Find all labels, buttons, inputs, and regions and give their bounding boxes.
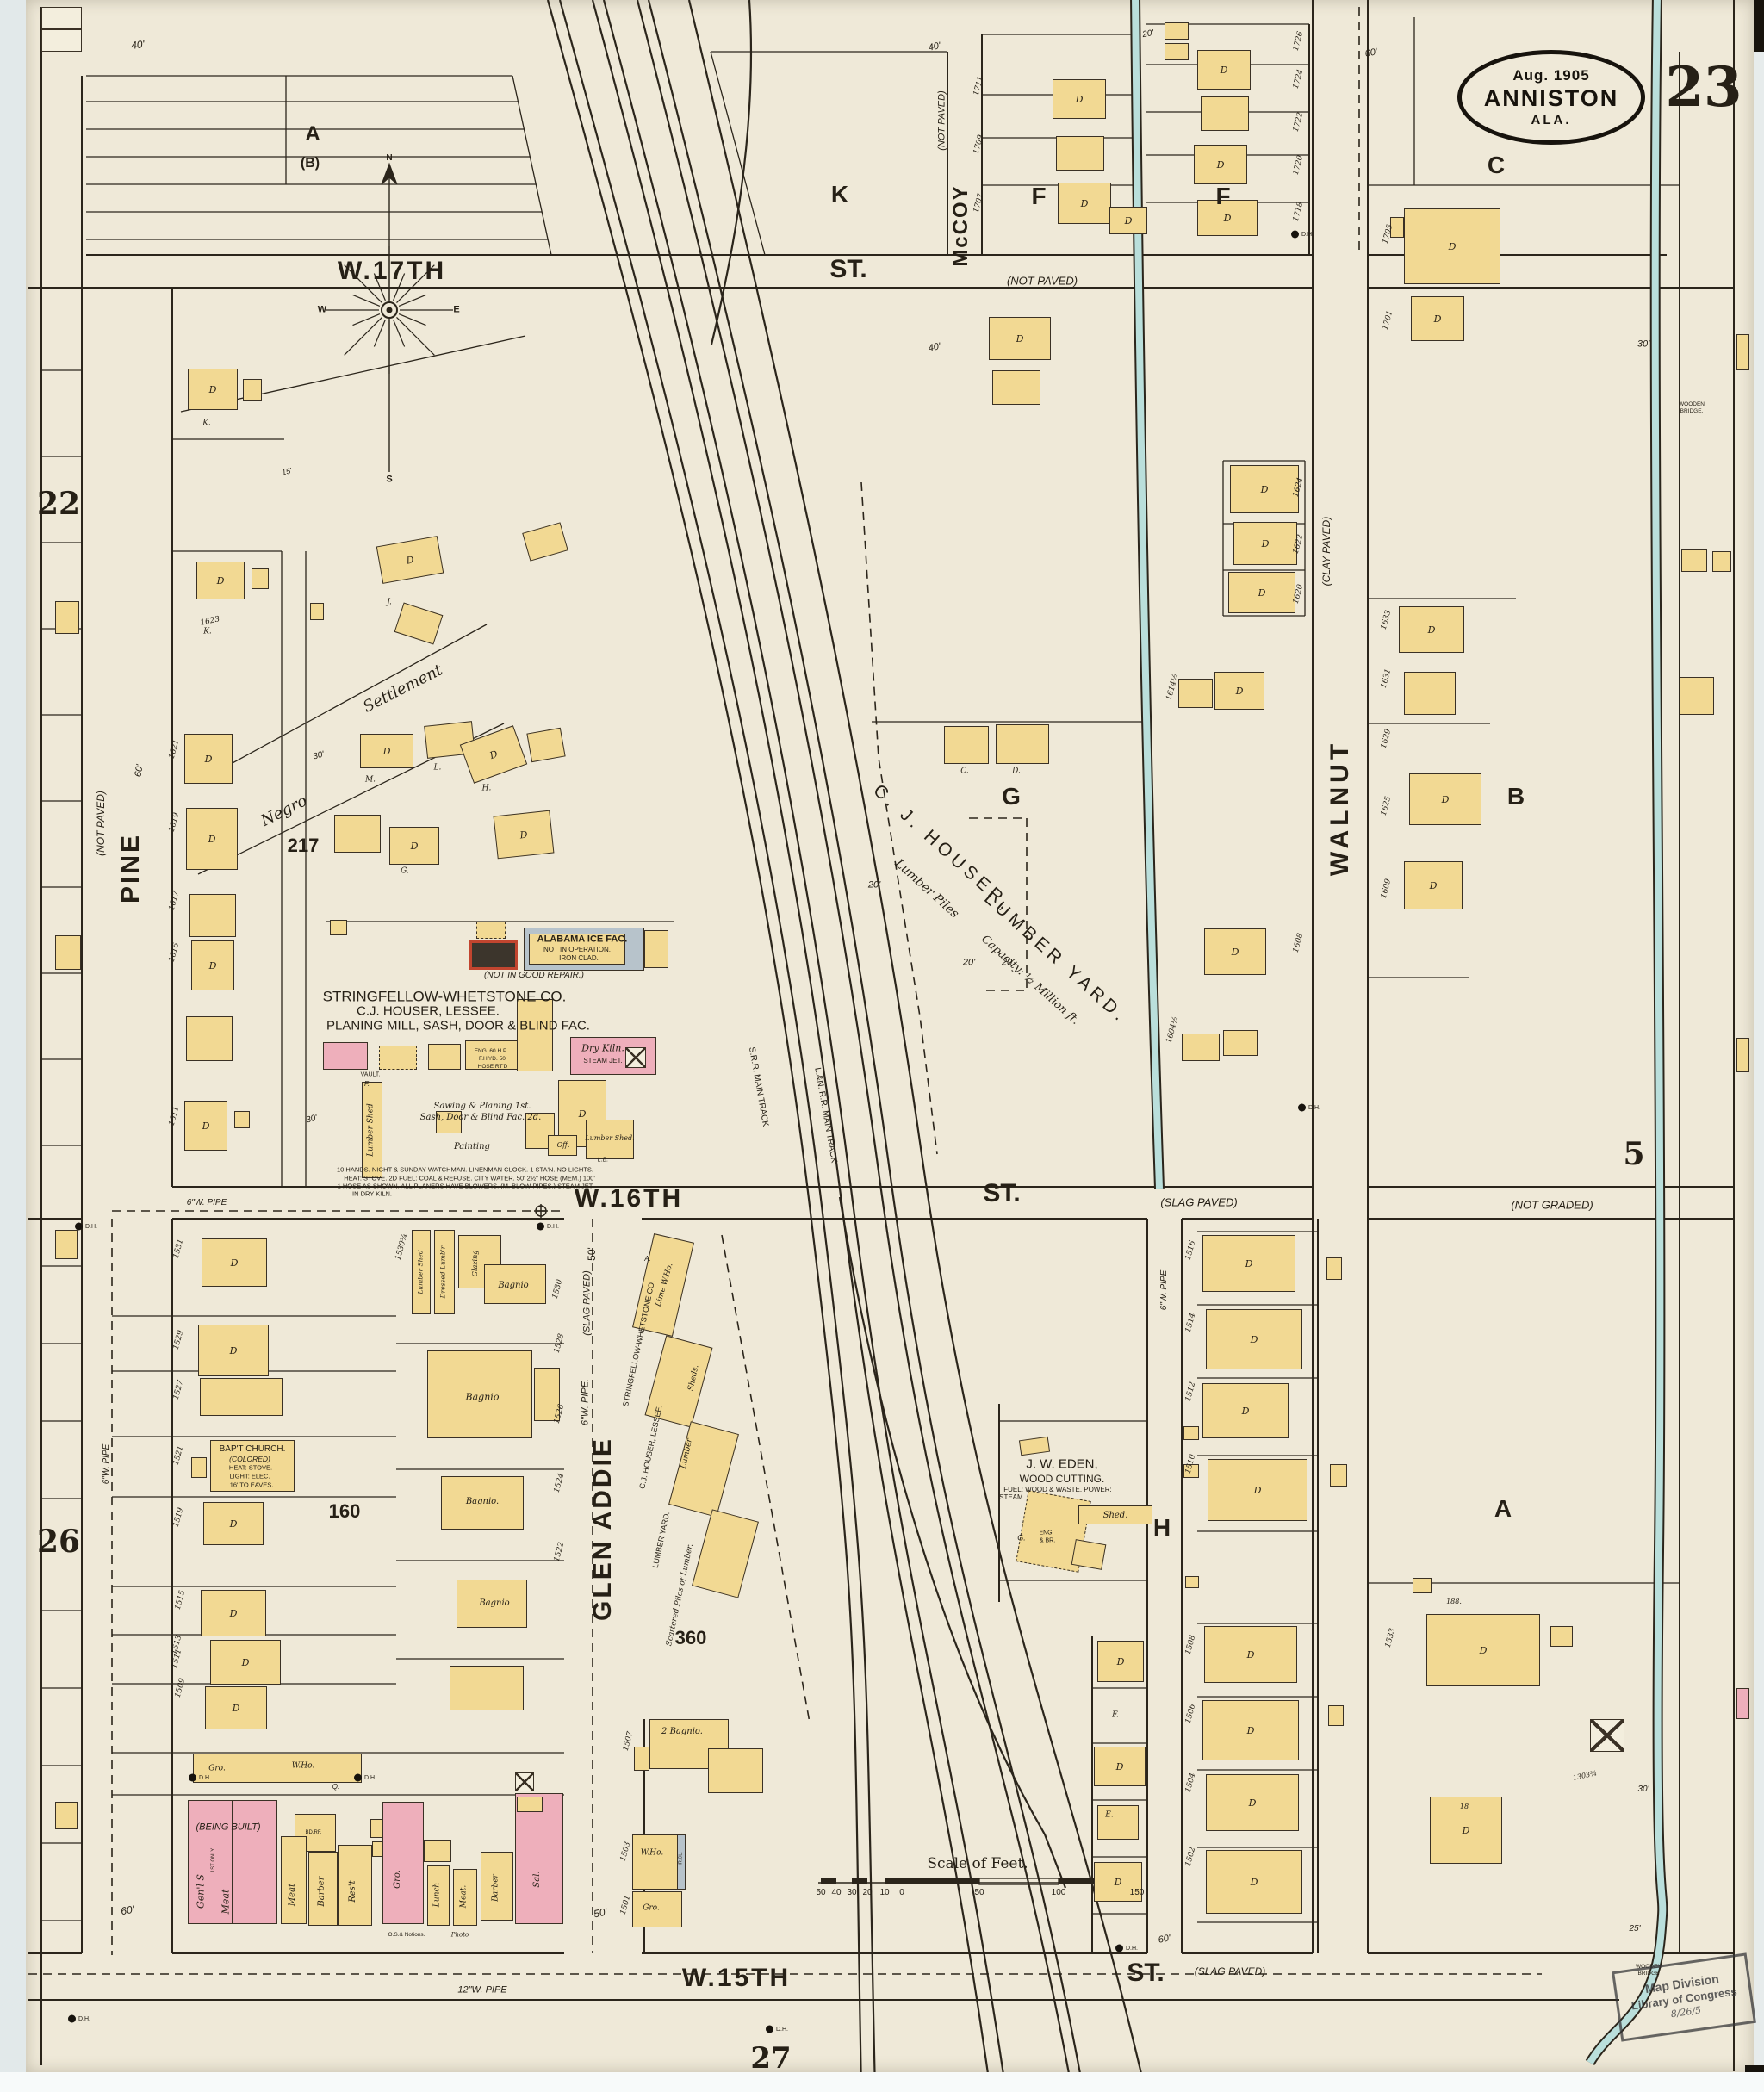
map-label: W.Ho. <box>641 1850 664 1858</box>
alabama-ice-factory: ALABAMA ICE FAC. <box>537 935 628 945</box>
building <box>1736 1688 1749 1719</box>
building: D <box>1053 79 1106 119</box>
map-label: (COLORED) <box>229 1456 270 1463</box>
building: D <box>1233 522 1297 565</box>
map-label: 50' <box>587 1247 597 1261</box>
map-label: C.J. HOUSER, LESSEE. <box>357 1005 500 1018</box>
map-label: 6"W. PIPE <box>187 1199 227 1207</box>
hydrant-dot-icon <box>1115 1945 1123 1952</box>
double-hydrant-marker: D.H. <box>68 2015 90 2023</box>
building: D <box>1058 183 1111 224</box>
double-hydrant-marker: D.H. <box>189 1774 211 1782</box>
map-label: HEAT: STOVE. <box>229 1464 272 1471</box>
block-f-west: F <box>1031 184 1046 208</box>
building: D <box>360 734 413 768</box>
map-label: PLANING MILL, SASH, DOOR & BLIND FAC. <box>326 1020 590 1033</box>
map-label: A. <box>644 1256 651 1263</box>
compass-letter: E <box>453 306 459 315</box>
map-label: Res't <box>349 1880 357 1902</box>
map-label: 30' <box>1637 1785 1649 1794</box>
building <box>1178 679 1213 708</box>
building: D <box>1404 208 1500 284</box>
building: D <box>1411 296 1464 341</box>
building: D <box>188 369 238 410</box>
building <box>55 935 81 970</box>
adjacent-sheet-5: 5 <box>1623 1139 1644 1170</box>
building: D <box>389 827 439 865</box>
map-label: STEAM. <box>999 1494 1025 1501</box>
scale-tick: 20 <box>862 1889 872 1897</box>
hydrant-dot-icon <box>189 1774 196 1782</box>
adjacent-sheet-26: 26 <box>37 1526 80 1557</box>
building: D <box>198 1325 269 1376</box>
map-label: ST. <box>983 1181 1020 1207</box>
map-label: LIGHT: ELEC. <box>229 1473 270 1480</box>
map-label: (NOT GRADED) <box>1511 1200 1593 1211</box>
scale-title: Scale of Feet. <box>927 1855 1028 1872</box>
building: D <box>202 1238 267 1287</box>
map-label: VAULT. <box>361 1072 381 1078</box>
compass-letter: W <box>318 306 326 315</box>
street-w-17th: W.17TH <box>338 258 446 284</box>
building: D <box>1426 1614 1540 1686</box>
block-b: B <box>1507 785 1525 809</box>
map-label: 16' TO EAVES. <box>230 1481 274 1488</box>
street-w-17th-st: ST. <box>829 257 866 282</box>
double-hydrant-marker: D.H. <box>1115 1945 1138 1952</box>
map-label: Off. <box>557 1142 570 1149</box>
double-hydrant-marker: D.H. <box>75 1223 97 1231</box>
building <box>424 1840 451 1862</box>
building <box>992 370 1040 405</box>
building <box>310 603 324 620</box>
building <box>55 601 79 634</box>
street-w-15th: W.15TH <box>682 1965 791 1991</box>
building: D <box>1208 1459 1307 1521</box>
block-a: A <box>305 124 320 145</box>
building <box>330 920 347 935</box>
map-label: 25' <box>1629 1925 1640 1934</box>
double-hydrant-marker: D.H. <box>354 1774 376 1782</box>
hydrant-dot-icon <box>1291 231 1299 239</box>
building: D <box>184 1101 227 1151</box>
map-label: F. <box>364 1081 370 1088</box>
building <box>1712 551 1731 572</box>
map-label: F. <box>1112 1712 1119 1720</box>
baptist-church: BAP'T CHURCH. <box>220 1445 286 1454</box>
map-label: Lunch <box>434 1883 442 1907</box>
building <box>281 1836 307 1924</box>
building: D <box>1197 50 1251 90</box>
building <box>708 1748 763 1793</box>
block-k: K <box>831 183 848 207</box>
building <box>55 1802 78 1829</box>
double-hydrant-marker: D.H. <box>766 2026 788 2033</box>
building: D <box>1202 1235 1295 1292</box>
building <box>469 940 518 970</box>
map-label: G. <box>401 868 409 876</box>
map-label: Meat <box>221 1890 231 1915</box>
double-hydrant-marker: D.H. <box>1298 1104 1320 1112</box>
map-label: Gen'l S <box>196 1874 206 1909</box>
scale-tick: 50 <box>816 1889 825 1897</box>
map-label: Sash, Door & Blind Fac. 2d. <box>420 1114 542 1122</box>
block-160: 160 <box>329 1502 361 1521</box>
map-label: Gro. <box>643 1905 660 1913</box>
building <box>515 1793 563 1924</box>
block-h: H <box>1153 1516 1171 1540</box>
adjacent-sheet-27: 27 <box>750 2044 791 2073</box>
map-label: WOODEN <box>1679 402 1705 408</box>
map-label: 18 <box>1460 1803 1469 1810</box>
map-label: FUEL: WOOD & WASTE. POWER: <box>1003 1487 1112 1493</box>
building <box>1590 1719 1624 1752</box>
building <box>41 29 82 52</box>
building <box>634 1747 649 1771</box>
map-label: Lumber Shed. <box>585 1135 634 1142</box>
building <box>1056 136 1104 171</box>
building <box>1182 1034 1220 1061</box>
map-label: WOOD CUTTING. <box>1020 1474 1105 1484</box>
map-label: Glazing <box>472 1251 479 1277</box>
building: D <box>1094 1747 1146 1786</box>
building: D <box>201 1590 266 1636</box>
map-label: Barber <box>493 1874 500 1902</box>
being-built: (BEING BUILT) <box>196 1823 261 1833</box>
building: D <box>1206 1309 1302 1369</box>
hydrant-dot-icon <box>68 2015 76 2023</box>
building <box>1328 1705 1344 1726</box>
building: D <box>1399 606 1464 653</box>
building <box>200 1378 283 1416</box>
building <box>1097 1805 1139 1840</box>
building: D <box>1204 1626 1297 1683</box>
building: D <box>1230 465 1299 513</box>
street-mccoy: McCOY <box>951 184 972 266</box>
map-label: 30' <box>1637 340 1649 350</box>
map-label: Painting <box>454 1143 490 1152</box>
map-label: & BR. <box>1040 1538 1055 1544</box>
map-label: (CLAY PAVED) <box>1321 517 1332 587</box>
building <box>517 999 553 1071</box>
map-label: Barber <box>318 1876 326 1906</box>
building <box>1183 1426 1199 1440</box>
building: D <box>494 810 555 860</box>
map-label: M. <box>365 777 376 785</box>
map-label: 2 Bagnio. <box>661 1728 703 1736</box>
map-label: BD.RF. <box>305 1830 321 1835</box>
building <box>526 728 565 762</box>
map-label: H. <box>482 785 492 793</box>
building <box>233 1800 277 1924</box>
building <box>1071 1539 1107 1570</box>
map-label: (SLAG PAVED) <box>583 1270 593 1336</box>
stamp-date: 8/26/5 <box>1670 2004 1702 2020</box>
map-label: L. <box>434 765 442 773</box>
map-label: Bagnio. <box>466 1498 499 1506</box>
map-label: 20' <box>1002 959 1014 968</box>
map-label: Bagnio <box>498 1282 528 1290</box>
map-label: 6"W. PIPE. <box>581 1379 591 1425</box>
map-label: Bagnio <box>466 1393 500 1402</box>
double-hydrant-marker: D.H. <box>1291 231 1314 239</box>
street-walnut: WALNUT <box>1327 740 1353 876</box>
dry-kiln: Dry Kiln. <box>581 1044 624 1053</box>
building: D <box>203 1502 264 1545</box>
map-label: (NOT PAVED) <box>938 90 947 150</box>
building: D <box>1228 572 1295 613</box>
building <box>382 1802 424 1924</box>
scale-tick: 100 <box>1052 1889 1066 1897</box>
block-f-east: F <box>1215 184 1230 208</box>
building: D <box>1206 1774 1299 1831</box>
hydrant-dot-icon <box>354 1774 362 1782</box>
building <box>944 726 989 764</box>
map-label: Photo <box>451 1933 469 1939</box>
map-label: ENG. 60 H.P. <box>475 1049 508 1055</box>
jw-eden-wood-cutting: J. W. EDEN, <box>1026 1458 1097 1471</box>
building: D <box>1214 672 1264 710</box>
compass-letter: S <box>386 475 392 485</box>
building: D <box>1194 145 1247 184</box>
map-label: E. <box>1105 1812 1113 1820</box>
building <box>1201 96 1249 131</box>
map-label: 6"W. PIPE <box>102 1444 111 1485</box>
title-state: ALA. <box>1531 113 1572 127</box>
map-label: 1 HOSE AS SHOWN. ALL PLANERS HAVE BLOWER… <box>338 1183 593 1189</box>
map-label: W.Ho. <box>292 1763 315 1771</box>
map-label: 1ST ONLY <box>211 1848 216 1872</box>
hydrant-dot-icon <box>537 1223 544 1231</box>
map-label: IR.CL. <box>679 1852 684 1865</box>
map-label: Meat. <box>461 1885 469 1908</box>
building <box>189 894 236 937</box>
map-label: Shed. <box>1103 1512 1128 1520</box>
map-label: F.H'YD. 50' <box>479 1057 506 1063</box>
map-label: 60' <box>120 1904 134 1917</box>
scale-tick: 30 <box>847 1889 856 1897</box>
map-label: (NOT IN GOOD REPAIR.) <box>484 972 584 980</box>
building <box>1550 1626 1573 1647</box>
map-label: (NOT PAVED) <box>96 791 106 856</box>
title-date: Aug. 1905 <box>1512 67 1589 84</box>
map-label: L.B. <box>598 1158 608 1164</box>
building: D <box>1409 773 1481 825</box>
block-g: G <box>1002 785 1021 809</box>
building <box>450 1666 524 1710</box>
building <box>252 568 269 589</box>
building <box>334 815 381 853</box>
sheet-number: 23 <box>1665 60 1742 115</box>
map-label: STEAM JET. <box>583 1058 622 1065</box>
building: D <box>210 1640 281 1685</box>
building <box>55 1230 78 1259</box>
building <box>517 1797 543 1812</box>
map-label: 10 HANDS. NIGHT & SUNDAY WATCHMAN. LINEN… <box>337 1166 593 1173</box>
building <box>996 724 1049 764</box>
hydrant-dot-icon <box>1298 1104 1306 1112</box>
building: D <box>191 940 234 990</box>
stringfellow-whetstone-title: STRINGFELLOW-WHETSTONE CO. <box>323 990 567 1004</box>
map-label: (NOT PAVED) <box>1007 276 1078 287</box>
building <box>234 1111 250 1128</box>
street-w-16th: W.16TH <box>575 1186 683 1212</box>
building: D <box>205 1686 267 1729</box>
building <box>1165 43 1189 60</box>
map-label: 188. <box>1446 1598 1462 1605</box>
map-label: C. <box>960 768 968 776</box>
map-label: Bagnio <box>479 1599 509 1608</box>
map-label: Lumber Shed <box>368 1103 376 1157</box>
map-label: (SLAG PAVED) <box>1195 1966 1265 1977</box>
block-360: 360 <box>675 1629 707 1648</box>
hydrant-dot-icon <box>766 2026 773 2033</box>
building <box>1185 1576 1199 1588</box>
building: D <box>1097 1641 1144 1682</box>
building <box>1736 1038 1749 1072</box>
map-label: HOSE RT'D <box>478 1065 508 1071</box>
map-label: G. <box>1017 1535 1026 1543</box>
sanborn-map-sheet: DDDDDDDDDDDDDDDDDDDDDDDDDDDDDDDDDDDDDDDD… <box>0 0 1764 2092</box>
map-label: BRIDGE. <box>1680 409 1704 415</box>
building <box>476 922 506 939</box>
scale-tick: 40 <box>831 1889 841 1897</box>
building <box>515 1772 534 1791</box>
building <box>1404 672 1456 715</box>
building <box>1223 1030 1258 1056</box>
building: D <box>1206 1850 1302 1914</box>
block-a-south: A <box>1494 1497 1512 1521</box>
map-label: O.S.& Notions. <box>388 1933 425 1939</box>
title-city: ANNISTON <box>1484 85 1619 112</box>
street-pine: PINE <box>118 833 144 903</box>
building: D <box>1404 861 1463 909</box>
building: D <box>1109 207 1147 234</box>
map-label: Gro. <box>394 1870 402 1889</box>
building <box>644 930 668 968</box>
building: D <box>196 562 245 599</box>
double-hydrant-marker: D.H. <box>537 1223 559 1231</box>
map-label: (SLAG PAVED) <box>1160 1197 1237 1208</box>
building: D <box>186 808 238 870</box>
scale-bar <box>818 1878 1141 1884</box>
building: D <box>184 734 233 784</box>
building <box>1680 677 1714 715</box>
building <box>243 379 262 401</box>
building <box>632 1834 682 1890</box>
building <box>323 1042 368 1070</box>
map-label: 6"W. PIPE <box>1160 1270 1169 1311</box>
building <box>1330 1464 1347 1487</box>
building <box>1326 1257 1342 1280</box>
hydrant-dot-icon <box>75 1223 83 1231</box>
map-label: Meat <box>289 1884 297 1906</box>
building <box>379 1046 417 1070</box>
map-label: 20' <box>963 959 975 968</box>
map-label: Sal. <box>533 1871 542 1887</box>
building: D <box>1204 928 1266 975</box>
block-c: C <box>1488 153 1505 177</box>
building: D <box>1202 1700 1299 1760</box>
map-label: (B) <box>301 157 320 171</box>
compass-rose-icon <box>326 164 453 472</box>
page-margin-bottom <box>0 2072 1764 2092</box>
map-label: NOT IN OPERATION. <box>543 947 611 953</box>
map-label: ENG. <box>1039 1530 1053 1536</box>
scale-tick: 10 <box>879 1889 889 1897</box>
map-label: ST. <box>1127 1960 1164 1986</box>
scale-tick: 0 <box>899 1889 904 1897</box>
map-label: 12"W. PIPE <box>457 1986 506 1996</box>
compass-letter: N <box>386 154 392 163</box>
map-label: J. <box>387 599 392 607</box>
building <box>625 1047 646 1068</box>
map-label: D. <box>1012 768 1021 776</box>
map-label: Q. <box>332 1784 339 1791</box>
map-label: 20' <box>868 881 880 891</box>
map-label: Sawing & Planing 1st. <box>434 1102 531 1111</box>
building <box>1681 549 1707 572</box>
building <box>1736 334 1749 370</box>
scale-tick: 50 <box>974 1889 984 1897</box>
map-label: IN DRY KILN. <box>352 1190 392 1197</box>
building <box>191 1457 207 1478</box>
map-label: 50' <box>593 1907 608 1920</box>
map-label: Dressed Lumb'r <box>439 1246 446 1299</box>
building: D <box>989 317 1051 360</box>
map-title-oval: Aug. 1905 ANNISTON ALA. <box>1457 50 1645 145</box>
building <box>428 1044 461 1070</box>
map-label: Gro. <box>208 1766 226 1773</box>
map-label: IRON CLAD. <box>559 955 599 962</box>
map-label: Lumber Shed <box>417 1250 424 1294</box>
scale-tick: 150 <box>1130 1889 1145 1897</box>
building <box>186 1016 233 1061</box>
adjacent-sheet-22: 22 <box>37 488 80 519</box>
valve-icon <box>534 1204 548 1218</box>
building: D <box>1202 1383 1289 1438</box>
street-glen-addie: GLEN ADDIE <box>590 1437 616 1621</box>
block-217: 217 <box>288 836 320 855</box>
building <box>1413 1578 1432 1593</box>
building <box>1165 22 1189 40</box>
building <box>41 7 82 29</box>
map-label: HEAT: STOVE. 2D FUEL: COAL & REFUSE. CIT… <box>344 1175 595 1182</box>
photo-edge-top-right <box>1754 0 1764 52</box>
map-label: K. <box>202 420 211 428</box>
map-label: 40' <box>130 39 145 51</box>
map-label: K. <box>203 629 212 636</box>
